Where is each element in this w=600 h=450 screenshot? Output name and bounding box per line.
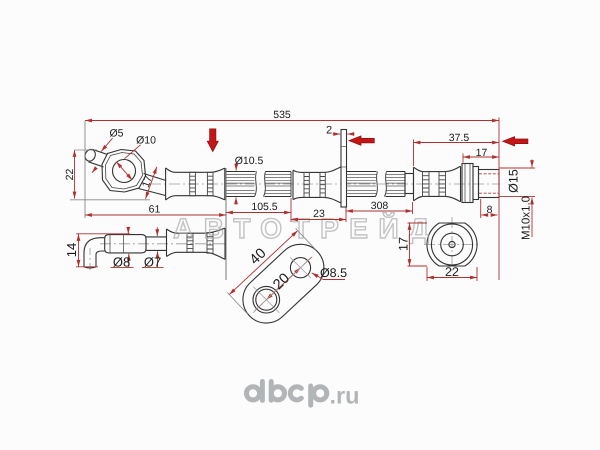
svg-text:.ru: .ru [330, 383, 360, 409]
svg-text:22: 22 [64, 169, 76, 181]
svg-text:40: 40 [247, 245, 270, 268]
svg-text:14: 14 [64, 243, 79, 257]
svg-text:17: 17 [397, 237, 411, 251]
svg-text:8: 8 [487, 204, 493, 216]
svg-text:Ø5: Ø5 [109, 128, 123, 140]
svg-text:61: 61 [149, 204, 161, 216]
svg-text:105.5: 105.5 [251, 201, 277, 213]
svg-text:37.5: 37.5 [449, 132, 470, 144]
svg-text:2: 2 [326, 125, 332, 137]
svg-text:23: 23 [313, 208, 325, 220]
svg-text:535: 535 [273, 109, 291, 121]
svg-text:Ø10: Ø10 [136, 135, 156, 147]
svg-text:M10x1.0: M10x1.0 [521, 196, 533, 240]
svg-text:Ø15: Ø15 [507, 169, 521, 193]
svg-text:17: 17 [476, 147, 488, 159]
svg-text:20: 20 [270, 270, 293, 293]
svg-text:308: 308 [371, 200, 389, 212]
svg-text:АВТОТРЕЙД: АВТОТРЕЙД [173, 212, 429, 244]
svg-text:22: 22 [445, 265, 459, 279]
svg-text:Ø10.5: Ø10.5 [235, 155, 264, 167]
svg-text:Ø8: Ø8 [113, 255, 130, 270]
svg-text:Ø8.5: Ø8.5 [320, 266, 347, 280]
svg-text:Ø7: Ø7 [144, 255, 161, 270]
